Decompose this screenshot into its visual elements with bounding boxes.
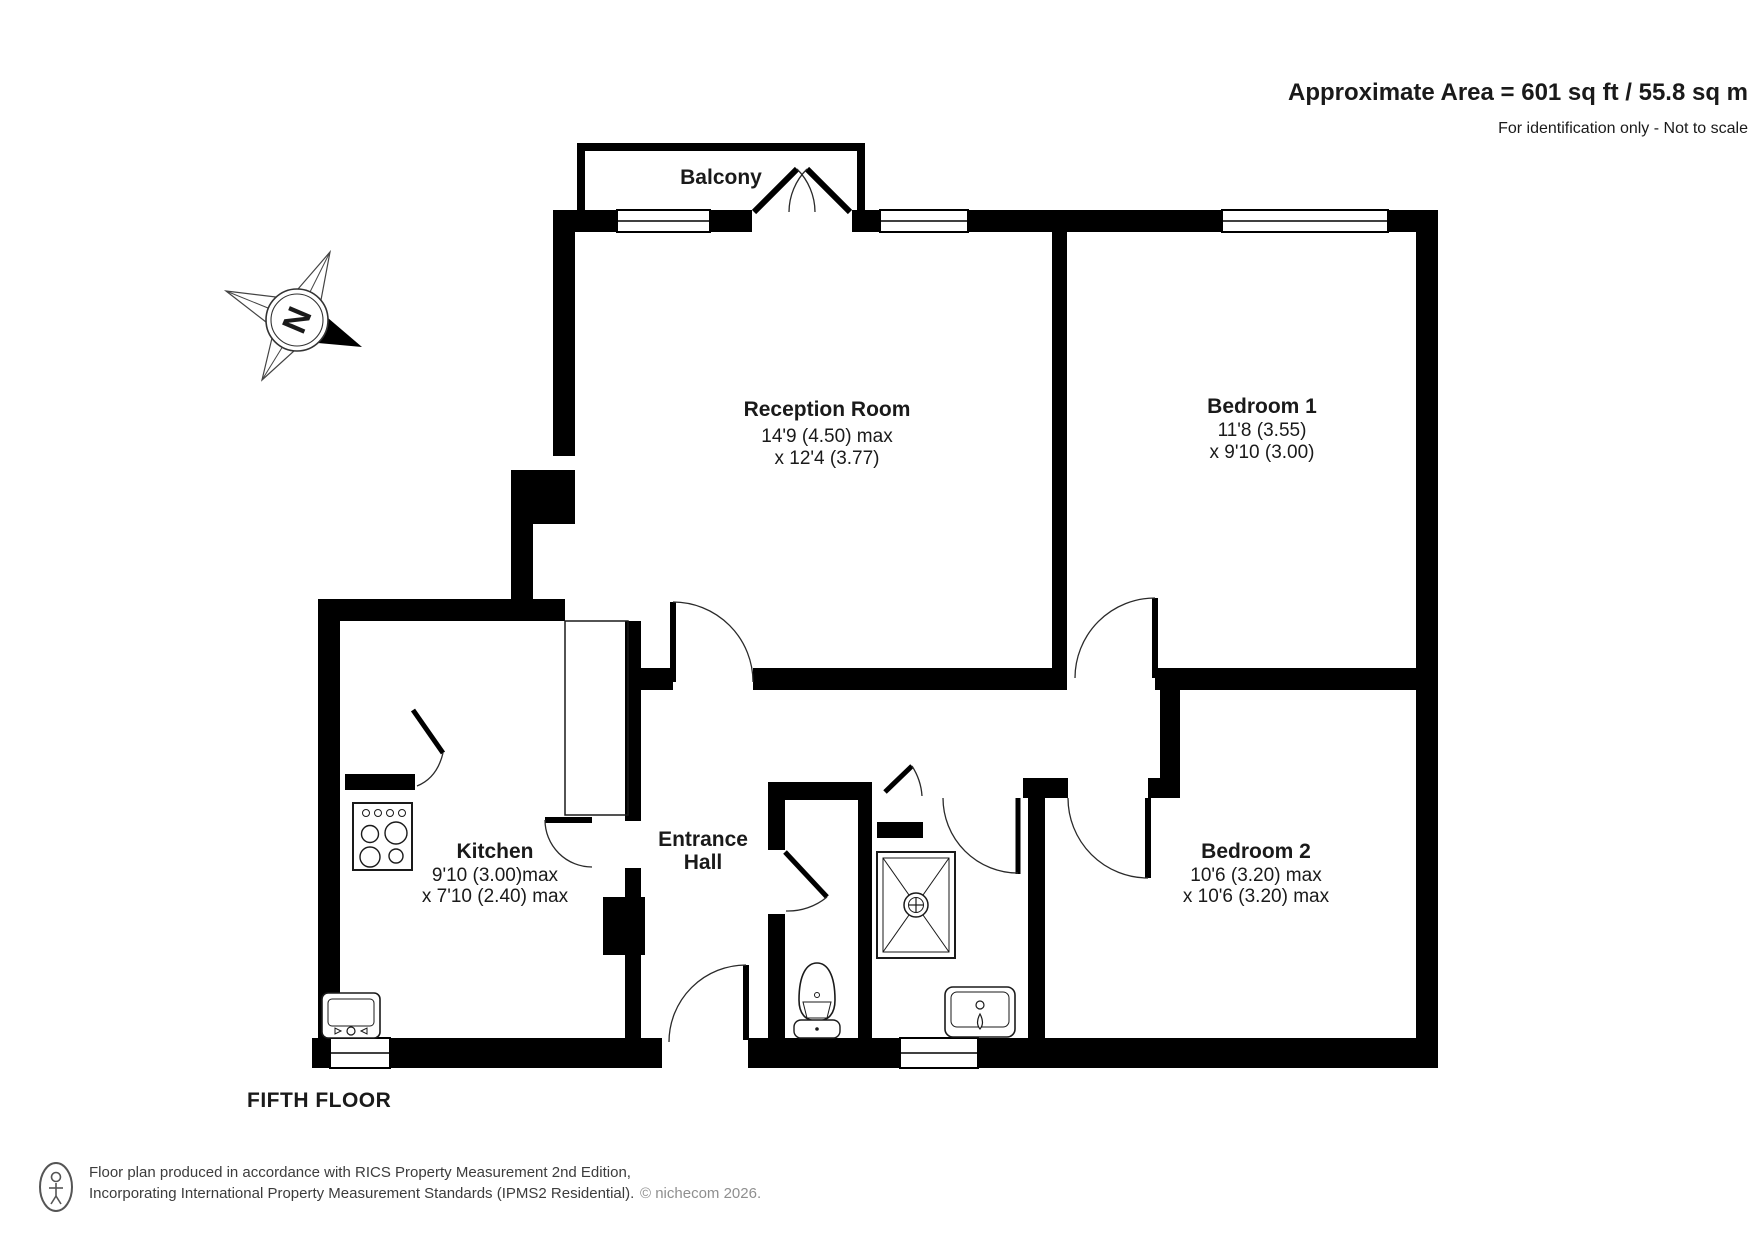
rics-note-line2: Incorporating International Property Mea… <box>89 1185 634 1202</box>
wall-right <box>1416 210 1438 1068</box>
rics-note-line1: Floor plan produced in accordance with R… <box>89 1164 631 1181</box>
kitchen-dim-2: x 7'10 (2.40) max <box>422 886 569 907</box>
room-bedroom1: Bedroom 1 11'8 (3.55) x 9'10 (3.00) <box>1207 395 1317 463</box>
door-leaf <box>785 852 827 897</box>
room-entrance-hall: Entrance Hall <box>658 828 748 874</box>
bedroom1-dim-1: 11'8 (3.55) <box>1218 420 1307 441</box>
kitchen-dim-1: 9'10 (3.00)max <box>432 865 559 886</box>
balcony-label: Balcony <box>680 166 762 189</box>
door-arc <box>545 820 592 867</box>
wall-reception-bedroom1 <box>1052 232 1067 668</box>
wall-left-kitchen <box>318 621 340 1038</box>
footer: Floor plan produced in accordance with R… <box>40 1163 761 1211</box>
person-icon <box>40 1163 72 1211</box>
scale-disclaimer: For identification only - Not to scale <box>1498 120 1748 137</box>
door-arc <box>786 897 827 911</box>
header: Approximate Area = 601 sq ft / 55.8 sq m… <box>1288 79 1748 137</box>
wash-basin <box>945 987 1015 1037</box>
cupboard-door-arc <box>417 753 443 786</box>
balcony: Balcony <box>577 143 865 210</box>
bedroom2-dim-2: x 10'6 (3.20) max <box>1183 886 1330 907</box>
cupboard <box>413 621 628 815</box>
shower-drain <box>904 893 928 917</box>
door-arc <box>673 602 753 682</box>
door-arc <box>1068 798 1148 878</box>
door-arc <box>912 766 922 796</box>
french-door-leaf <box>807 169 850 212</box>
cupboard-door-leaf <box>413 710 443 753</box>
wall-reception-jog <box>511 524 533 621</box>
approximate-area-label: Approximate Area = 601 sq ft / 55.8 sq m <box>1288 79 1748 106</box>
exterior-walls <box>312 210 1438 1068</box>
room-bedroom2: Bedroom 2 10'6 (3.20) max x 10'6 (3.20) … <box>1183 840 1330 907</box>
front-door-opening <box>662 1038 748 1068</box>
reception-dim-2: x 12'4 (3.77) <box>774 448 879 469</box>
balcony-door-opening <box>752 208 852 234</box>
floor-level-label: FIFTH FLOOR <box>247 1089 391 1112</box>
reception-name: Reception Room <box>744 398 911 421</box>
floor-plan-page: Approximate Area = 601 sq ft / 55.8 sq m… <box>0 0 1755 1241</box>
nichecom-credit: © nichecom 2026. <box>640 1185 761 1202</box>
wall-shower-bedroom2 <box>1028 798 1045 1038</box>
bedroom1-dim-2: x 9'10 (3.00) <box>1209 442 1314 463</box>
room-kitchen: Kitchen 9'10 (3.00)max x 7'10 (2.40) max <box>422 840 569 907</box>
bedroom2-dim-1: 10'6 (3.20) max <box>1190 865 1322 886</box>
wall-bottom <box>312 1038 1438 1068</box>
cupboard-box <box>565 621 628 815</box>
front-door-arc <box>669 965 746 1042</box>
door-leaf <box>885 766 912 792</box>
toilet <box>794 963 840 1038</box>
kitchen-name: Kitchen <box>456 840 533 863</box>
floor-plan-canvas: Approximate Area = 601 sq ft / 55.8 sq m… <box>0 0 1755 1241</box>
reception-dim-1: 14'9 (4.50) max <box>761 426 893 447</box>
bedroom2-name: Bedroom 2 <box>1201 840 1311 863</box>
door-arc <box>1075 598 1155 678</box>
shower <box>877 852 955 958</box>
wall-reception-block <box>511 470 575 524</box>
bedroom1-name: Bedroom 1 <box>1207 395 1317 418</box>
compass-rose: N <box>226 252 362 380</box>
entrance-hall-line1: Entrance <box>658 828 748 851</box>
wall-reception-left <box>553 210 575 456</box>
stove <box>353 803 412 870</box>
room-reception: Reception Room 14'9 (4.50) max x 12'4 (3… <box>744 398 911 469</box>
kitchen-sink <box>322 993 380 1038</box>
entrance-hall-line2: Hall <box>684 851 723 874</box>
